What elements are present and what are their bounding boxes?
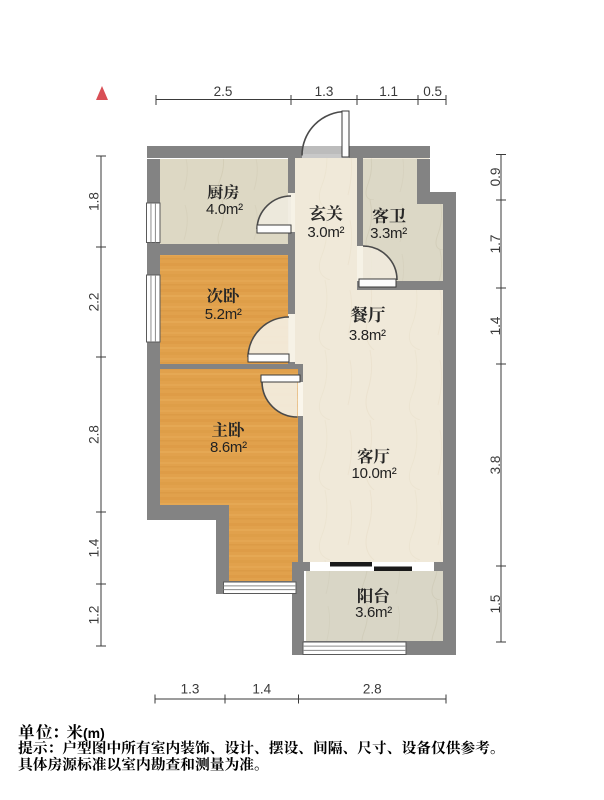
svg-text:3.0m²: 3.0m² — [307, 224, 344, 241]
svg-text:2.8: 2.8 — [87, 425, 102, 444]
svg-text:1.1: 1.1 — [379, 84, 398, 99]
svg-text:1.4: 1.4 — [252, 682, 271, 697]
svg-text:1.3: 1.3 — [315, 84, 334, 99]
svg-text:1.2: 1.2 — [87, 606, 102, 625]
svg-text:1.7: 1.7 — [488, 235, 503, 254]
svg-text:1.3: 1.3 — [181, 682, 200, 697]
svg-text:3.8m²: 3.8m² — [349, 327, 386, 344]
svg-text:3.6m²: 3.6m² — [355, 604, 392, 621]
svg-text:0.9: 0.9 — [488, 168, 503, 187]
svg-text:3.8: 3.8 — [488, 456, 503, 475]
svg-text:8.6m²: 8.6m² — [210, 439, 247, 456]
svg-text:3.3m²: 3.3m² — [370, 225, 407, 242]
svg-text:10.0m²: 10.0m² — [352, 465, 397, 482]
svg-text:1.4: 1.4 — [488, 316, 503, 335]
svg-text:1.4: 1.4 — [87, 538, 102, 557]
svg-text:(m): (m) — [83, 725, 105, 741]
svg-text:4.0m²: 4.0m² — [206, 201, 243, 218]
svg-text:2.8: 2.8 — [363, 682, 382, 697]
svg-text:1.5: 1.5 — [488, 595, 503, 614]
svg-text:2.2: 2.2 — [87, 293, 102, 312]
svg-text:0.5: 0.5 — [423, 84, 442, 99]
svg-text:5.2m²: 5.2m² — [205, 306, 242, 323]
svg-text:2.5: 2.5 — [214, 84, 233, 99]
svg-text:1.8: 1.8 — [87, 192, 102, 211]
